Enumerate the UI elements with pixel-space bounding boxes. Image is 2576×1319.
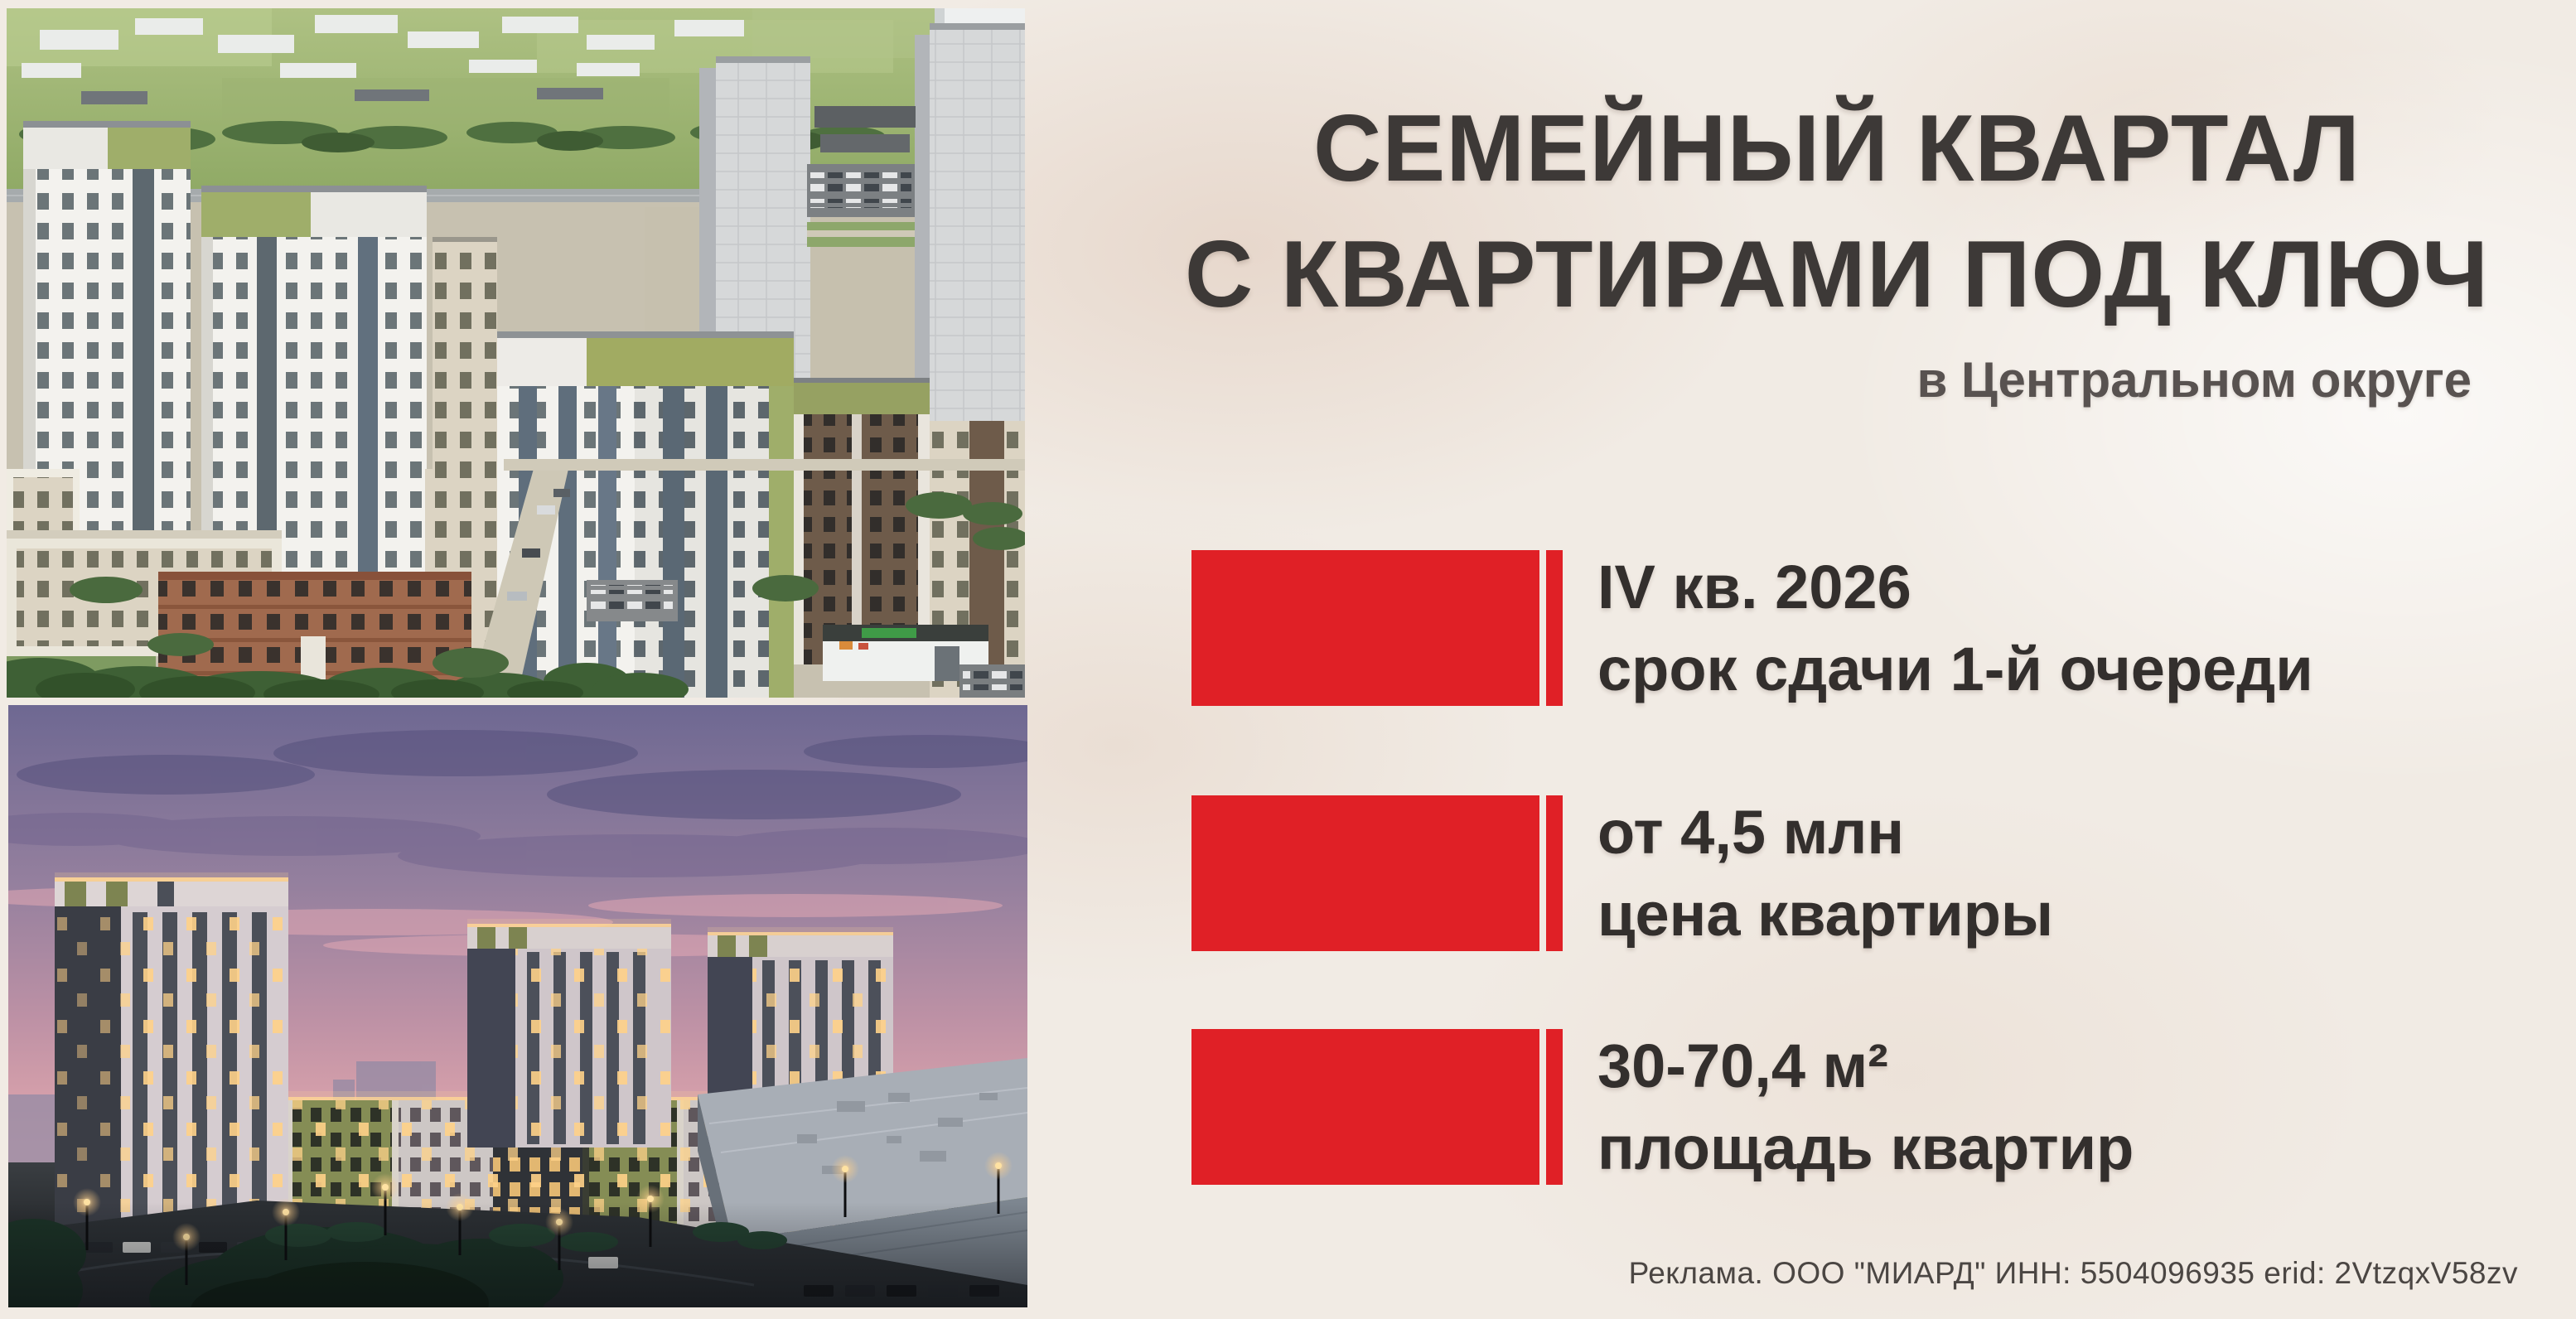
stat-value: от 4,5 млн <box>1597 791 2053 873</box>
day-aerial-illustration <box>7 8 1025 698</box>
headline: СЕМЕЙНЫЙ КВАРТАЛ С КВАРТИРАМИ ПОД КЛЮЧ <box>1040 86 2576 338</box>
stat-row-price: от 4,5 млн цена квартиры <box>1191 795 2313 951</box>
headline-line1: СЕМЕЙНЫЙ КВАРТАЛ <box>1098 86 2576 212</box>
photo-day-aerial <box>7 8 1025 698</box>
legal-disclaimer: Реклама. ООО "МИАРД" ИНН: 5504096935 eri… <box>1629 1256 2518 1291</box>
stat-label: цена квартиры <box>1597 873 2053 955</box>
vignette <box>8 1202 1027 1307</box>
dusk-illustration <box>8 705 1027 1307</box>
stat-red-block <box>1191 795 1539 951</box>
headline-line2: С КВАРТИРАМИ ПОД КЛЮЧ <box>1098 212 2576 338</box>
location-subtitle: в Центральном округе <box>1916 351 2472 408</box>
stat-value: IV кв. 2026 <box>1597 546 2313 628</box>
stat-red-block <box>1191 1029 1539 1185</box>
stat-red-stripe <box>1546 1029 1563 1185</box>
photo-dusk <box>8 705 1027 1307</box>
stat-label: срок сдачи 1-й очереди <box>1597 628 2313 710</box>
stat-red-block <box>1191 550 1539 706</box>
stat-value: 30-70,4 м² <box>1597 1025 2134 1107</box>
stats-list: IV кв. 2026 срок сдачи 1-й очереди от 4,… <box>1191 550 2313 1185</box>
stat-row-deadline: IV кв. 2026 срок сдачи 1-й очереди <box>1191 550 2313 706</box>
stat-row-area: 30-70,4 м² площадь квартир <box>1191 1029 2313 1185</box>
stat-red-stripe <box>1546 550 1563 706</box>
stat-label: площадь квартир <box>1597 1107 2134 1189</box>
stat-red-stripe <box>1546 795 1563 951</box>
